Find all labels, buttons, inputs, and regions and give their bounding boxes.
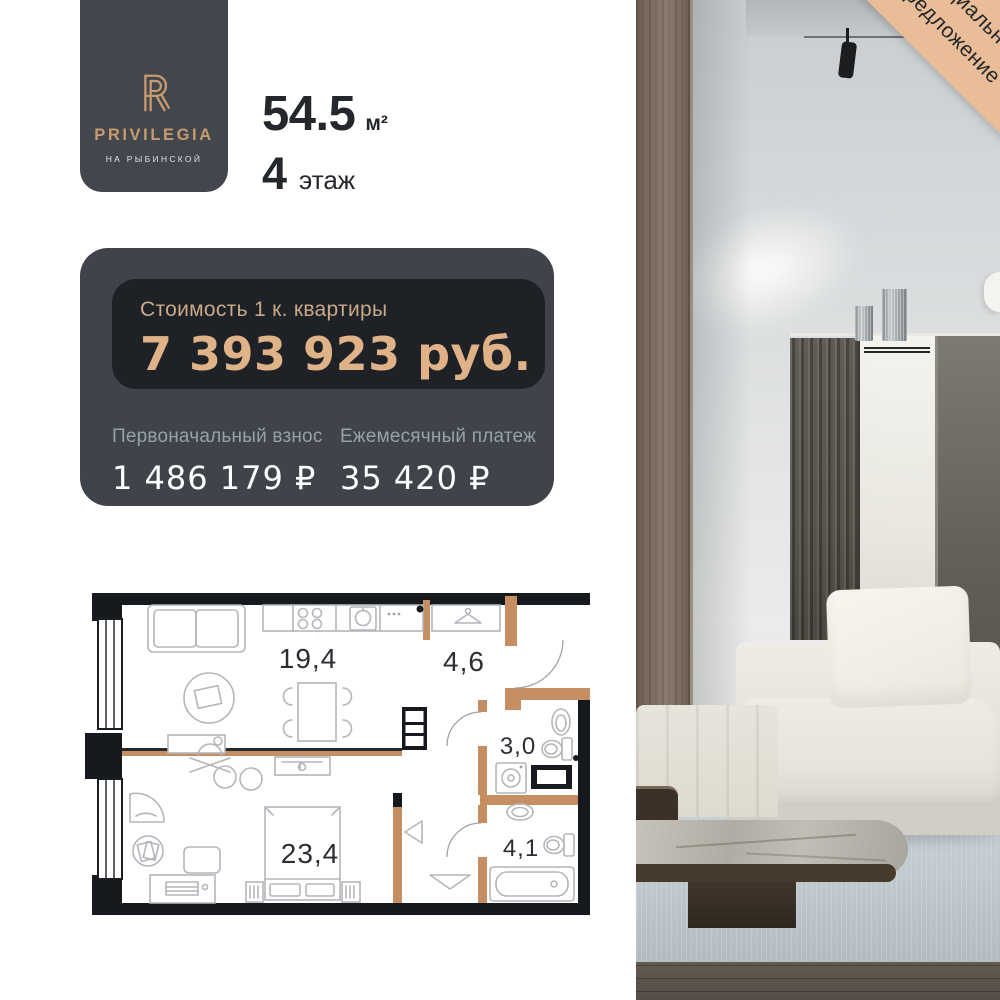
brand-subtitle: НА РЫБИНСКОЙ — [106, 154, 203, 164]
window — [98, 619, 122, 729]
bathroom-sink-icon — [552, 709, 570, 735]
price-label: Стоимость 1 к. квартиры — [140, 298, 545, 322]
toilet-icon — [544, 834, 574, 856]
monthly-payment-column: Ежемесячный платеж 35 420 ₽ — [340, 426, 536, 497]
logo-card: PRIVILEGIA НА РЫБИНСКОЙ — [80, 0, 228, 192]
coffee-table-base — [688, 882, 796, 928]
sofa-pillow — [826, 586, 972, 709]
round-rug-icon — [184, 673, 234, 723]
reading-chair-icon — [133, 836, 163, 866]
cabinet-handle — [864, 347, 930, 353]
interior-photo — [636, 0, 1000, 1000]
vase — [855, 305, 873, 341]
promo-flyer: PRIVILEGIA НА РЫБИНСКОЙ 54.5 м² 4 этаж С… — [0, 0, 1000, 1000]
toilet-icon — [542, 738, 572, 760]
down-payment-column: Первоначальный взнос 1 486 179 ₽ — [112, 426, 323, 497]
floor-plan: 19,4 4,6 3,0 23,4 4,1 — [84, 586, 594, 924]
monthly-payment-label: Ежемесячный платеж — [340, 426, 536, 448]
desk-icon — [168, 735, 262, 790]
room-label-bathroom-2: 4,1 — [503, 835, 539, 862]
room-label-kitchen-living: 19,4 — [279, 643, 338, 674]
kitchen-counter-icon — [263, 605, 423, 631]
washing-machine-icon — [496, 763, 526, 793]
shelf-unit-icon — [402, 707, 427, 750]
room-label-bathroom: 3,0 — [500, 733, 536, 760]
price-highlight-panel: Стоимость 1 к. квартиры 7 393 923 руб. — [112, 279, 545, 389]
brand-monogram-icon — [131, 70, 177, 116]
area-value: 54.5 — [262, 86, 355, 142]
closet-hanger-icon — [405, 821, 470, 889]
wardrobe-hanger-icon — [432, 605, 500, 631]
price-card: Стоимость 1 к. квартиры 7 393 923 руб. П… — [80, 248, 554, 506]
coffee-table-edge — [636, 864, 896, 882]
bedroom-desk-icon — [150, 847, 220, 903]
wall-corner-shade — [693, 0, 751, 712]
floor-value: 4 — [262, 148, 287, 200]
area-unit: м² — [365, 112, 388, 136]
monthly-payment-value: 35 420 ₽ — [340, 459, 536, 497]
down-payment-value: 1 486 179 ₽ — [112, 459, 323, 497]
tv-console-icon — [275, 757, 330, 775]
room-label-hallway: 4,6 — [443, 646, 485, 677]
brand-name: PRIVILEGIA — [94, 126, 214, 145]
lounge-chair-icon — [130, 793, 164, 822]
payment-columns: Первоначальный взнос 1 486 179 ₽ Ежемеся… — [112, 426, 536, 497]
price-value: 7 393 923 руб. — [140, 327, 545, 381]
wall-sconce — [984, 272, 1000, 312]
floor-label: этаж — [299, 165, 355, 196]
vase — [882, 288, 907, 341]
sofa-icon — [148, 605, 245, 652]
bathtub-icon — [490, 867, 574, 901]
room-label-bedroom: 23,4 — [281, 838, 340, 869]
apartment-floor: 4 этаж — [262, 148, 355, 200]
down-payment-label: Первоначальный взнос — [112, 426, 323, 448]
wood-panel-column — [636, 0, 693, 712]
apartment-area: 54.5 м² — [262, 86, 388, 142]
dining-table-icon — [284, 683, 352, 741]
window — [98, 779, 122, 879]
bathroom2-sink-icon — [507, 804, 533, 820]
ceiling-spotlight-icon — [838, 41, 857, 79]
